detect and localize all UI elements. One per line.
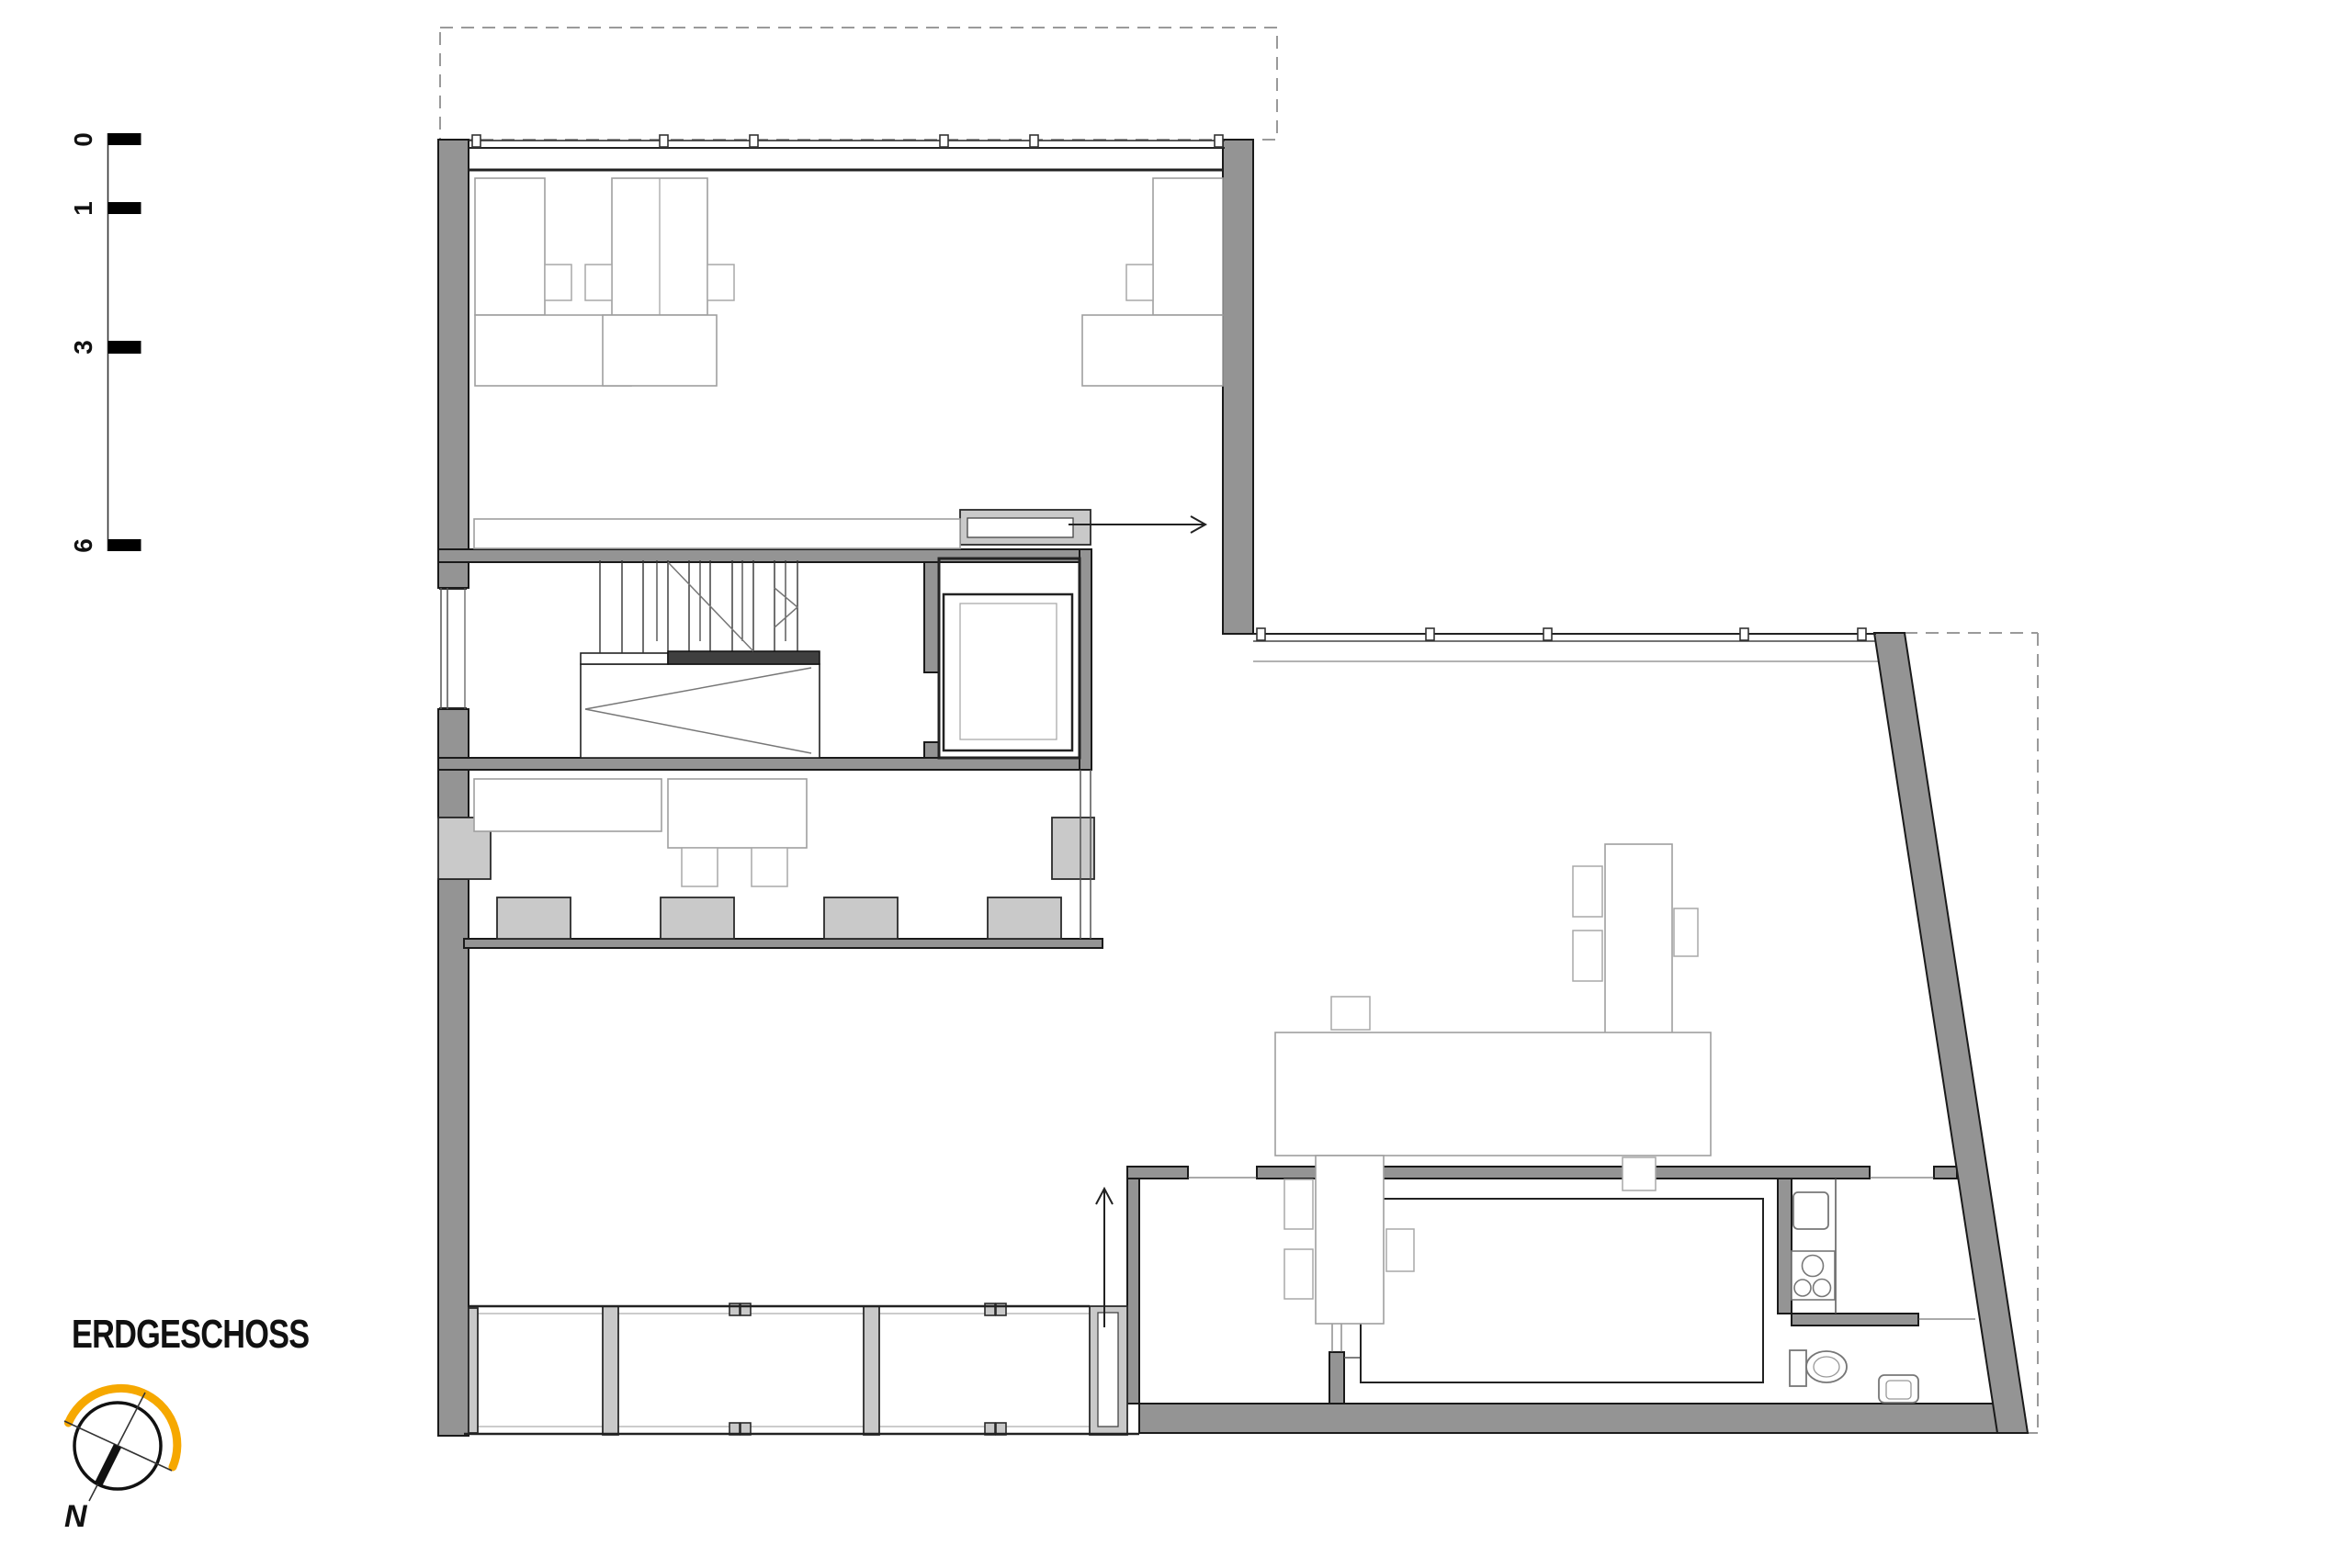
north-label: N xyxy=(64,1499,88,1534)
scale-tick-label: 6 xyxy=(69,538,97,553)
scale-tick-label: 1 xyxy=(69,201,97,216)
north-compass: N xyxy=(64,1388,177,1534)
plan-title: ERDGESCHOSS xyxy=(72,1312,309,1358)
scale-tick-label: 3 xyxy=(69,340,97,355)
fixtures-layer xyxy=(1790,1192,1918,1403)
floor-plan-drawing: 0136N xyxy=(0,0,2352,1568)
scale-bar: 0136 xyxy=(69,132,141,553)
floor-plan-page: 0136N ERDGESCHOSS xyxy=(0,0,2352,1568)
scale-tick-label: 0 xyxy=(69,132,97,147)
